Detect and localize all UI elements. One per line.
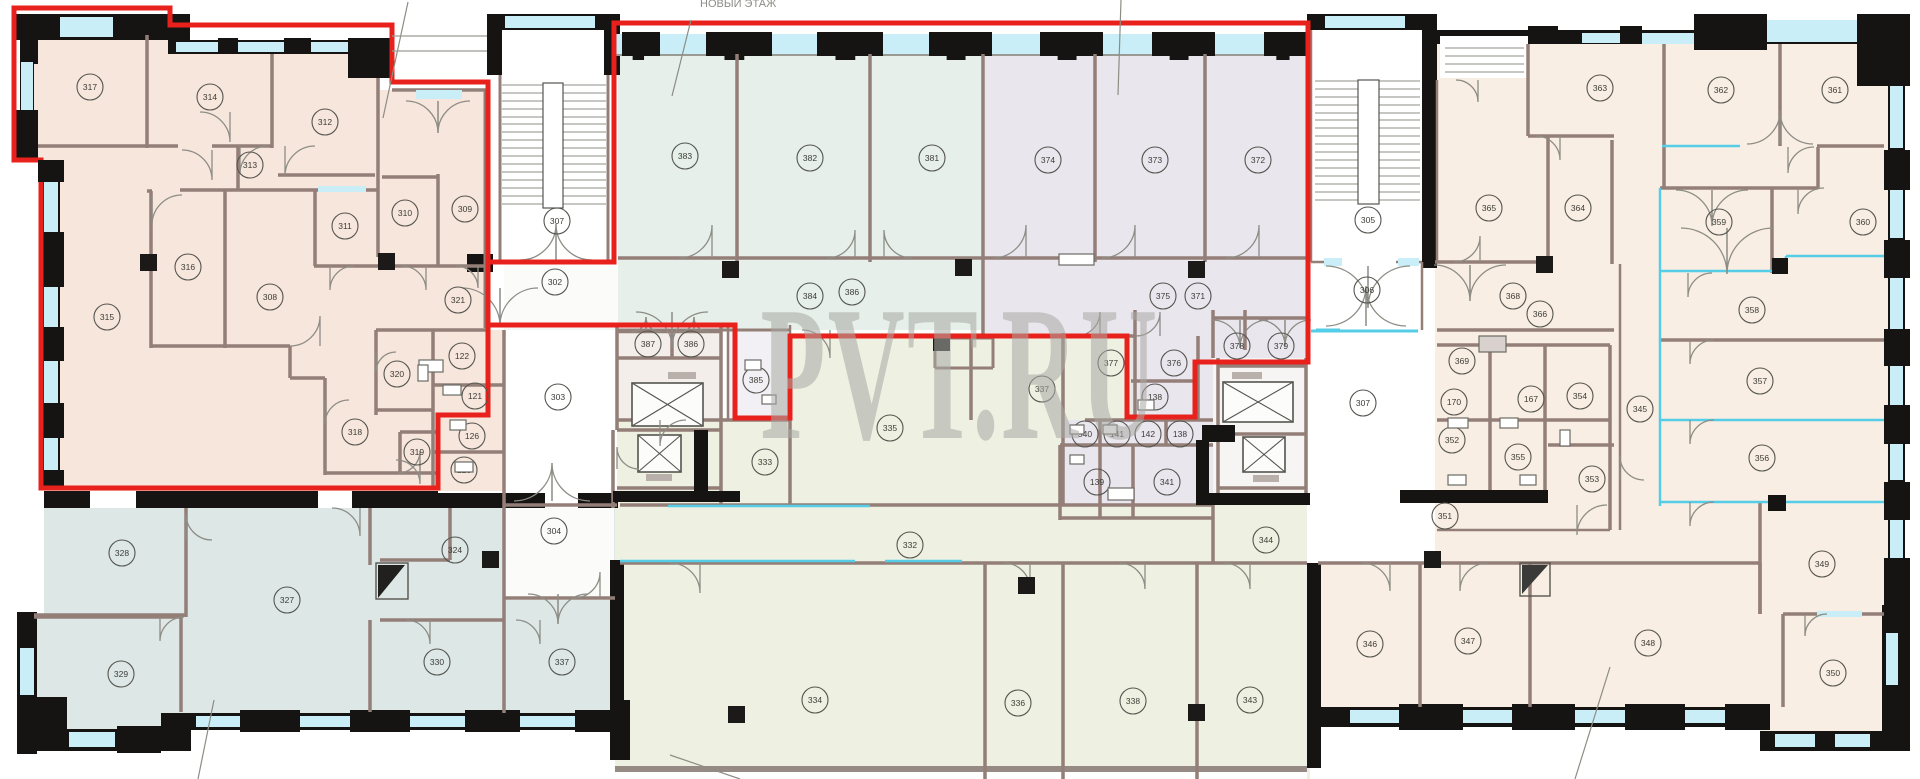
svg-text:354: 354 [1573, 391, 1587, 401]
svg-text:373: 373 [1148, 155, 1162, 165]
svg-text:382: 382 [803, 153, 817, 163]
svg-text:372: 372 [1251, 155, 1265, 165]
svg-text:350: 350 [1826, 668, 1840, 678]
svg-text:387: 387 [641, 339, 655, 349]
svg-text:356: 356 [1755, 453, 1769, 463]
svg-text:338: 338 [1126, 696, 1140, 706]
svg-text:369: 369 [1455, 356, 1469, 366]
svg-text:311: 311 [338, 221, 352, 231]
svg-text:365: 365 [1482, 203, 1496, 213]
svg-text:307: 307 [550, 216, 564, 226]
svg-text:341: 341 [1160, 477, 1174, 487]
svg-text:360: 360 [1856, 217, 1870, 227]
svg-text:346: 346 [1363, 639, 1377, 649]
svg-text:330: 330 [430, 657, 444, 667]
svg-text:366: 366 [1533, 309, 1547, 319]
svg-text:352: 352 [1445, 435, 1459, 445]
svg-text:343: 343 [1243, 695, 1257, 705]
svg-text:336: 336 [1011, 698, 1025, 708]
svg-text:345: 345 [1633, 404, 1647, 414]
svg-text:349: 349 [1815, 559, 1829, 569]
svg-text:328: 328 [115, 548, 129, 558]
svg-text:383: 383 [678, 151, 692, 161]
svg-text:315: 315 [100, 312, 114, 322]
svg-text:317: 317 [83, 82, 97, 92]
svg-text:362: 362 [1714, 85, 1728, 95]
svg-text:351: 351 [1438, 511, 1452, 521]
svg-text:304: 304 [547, 526, 561, 536]
svg-text:379: 379 [1274, 341, 1288, 351]
svg-text:312: 312 [318, 117, 332, 127]
svg-text:363: 363 [1593, 83, 1607, 93]
svg-text:121: 121 [468, 391, 482, 401]
svg-text:353: 353 [1585, 474, 1599, 484]
svg-text:381: 381 [925, 153, 939, 163]
svg-text:347: 347 [1461, 636, 1475, 646]
svg-text:307: 307 [1356, 398, 1370, 408]
svg-text:316: 316 [181, 262, 195, 272]
svg-text:368: 368 [1506, 291, 1520, 301]
svg-text:332: 332 [903, 540, 917, 550]
svg-text:122: 122 [455, 351, 469, 361]
svg-text:327: 327 [280, 595, 294, 605]
svg-text:320: 320 [390, 369, 404, 379]
svg-text:357: 357 [1753, 376, 1767, 386]
svg-text:302: 302 [548, 277, 562, 287]
svg-text:337: 337 [555, 657, 569, 667]
svg-text:358: 358 [1745, 305, 1759, 315]
svg-text:359: 359 [1712, 217, 1726, 227]
svg-text:324: 324 [448, 545, 462, 555]
svg-text:306: 306 [1360, 285, 1374, 295]
svg-text:167: 167 [1524, 394, 1538, 404]
svg-text:329: 329 [114, 669, 128, 679]
svg-text:313: 313 [243, 160, 257, 170]
svg-text:364: 364 [1571, 203, 1585, 213]
svg-text:386: 386 [684, 339, 698, 349]
svg-text:309: 309 [458, 204, 472, 214]
svg-text:361: 361 [1828, 85, 1842, 95]
svg-text:348: 348 [1641, 638, 1655, 648]
svg-text:334: 334 [808, 695, 822, 705]
svg-text:PVT.RU: PVT.RU [760, 267, 1159, 480]
svg-text:303: 303 [551, 392, 565, 402]
svg-text:376: 376 [1167, 358, 1181, 368]
svg-text:138: 138 [1173, 429, 1187, 439]
svg-text:308: 308 [263, 292, 277, 302]
svg-text:319: 319 [410, 447, 424, 457]
svg-text:344: 344 [1259, 535, 1273, 545]
svg-text:318: 318 [348, 427, 362, 437]
svg-text:314: 314 [203, 92, 217, 102]
svg-text:305: 305 [1361, 215, 1375, 225]
svg-text:374: 374 [1041, 155, 1055, 165]
svg-text:371: 371 [1191, 291, 1205, 301]
svg-text:355: 355 [1511, 452, 1525, 462]
svg-text:310: 310 [398, 208, 412, 218]
svg-text:321: 321 [451, 295, 465, 305]
svg-text:126: 126 [465, 431, 479, 441]
svg-text:НОВЫЙ ЭТАЖ: НОВЫЙ ЭТАЖ [700, 0, 776, 10]
svg-text:170: 170 [1447, 397, 1461, 407]
svg-text:378: 378 [1230, 341, 1244, 351]
